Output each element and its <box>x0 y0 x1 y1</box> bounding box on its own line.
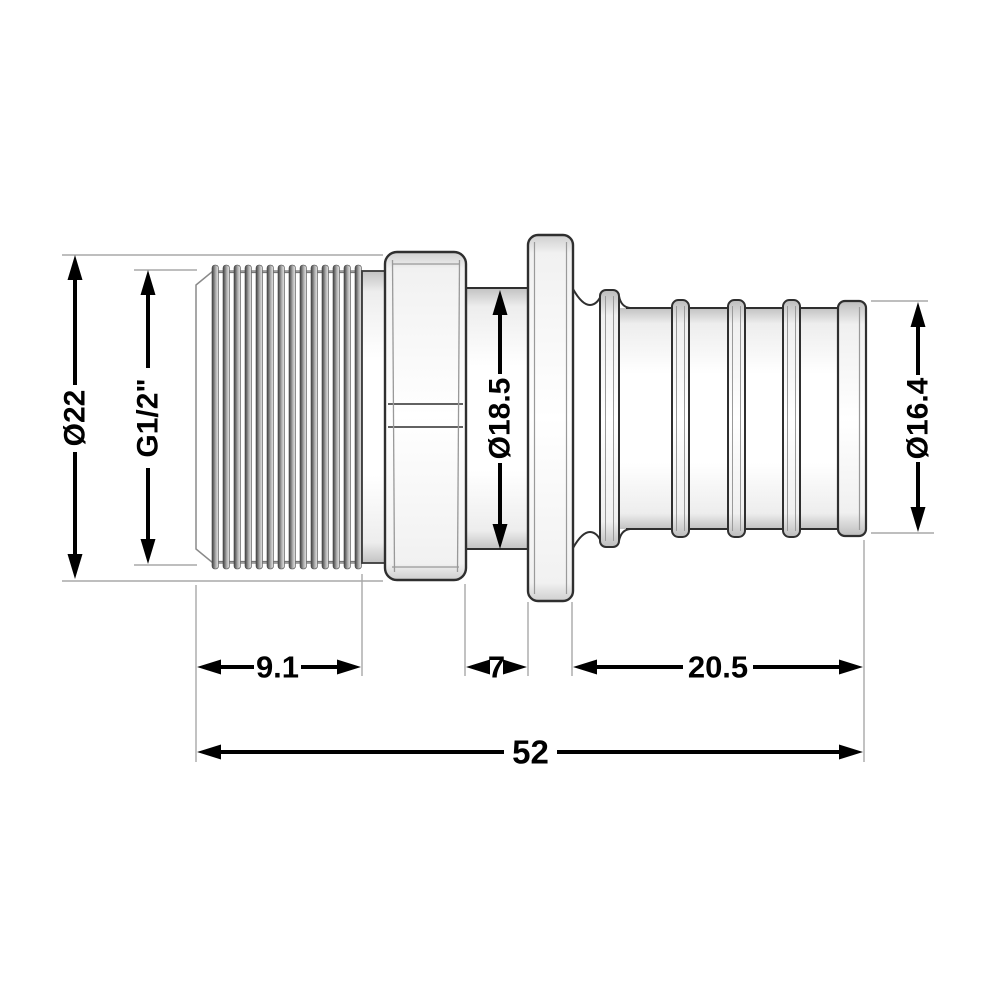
arrowhead-right <box>839 745 863 760</box>
arrowhead-left <box>197 660 221 675</box>
dim-thread-length-label: 9.1 <box>256 650 299 685</box>
hex-nut <box>385 252 466 580</box>
arrowhead-up <box>911 302 926 327</box>
dim-neck-length-label: 7 <box>488 650 505 685</box>
collar-flange <box>528 235 573 601</box>
dim-outer-diameter: Ø22 <box>59 255 92 579</box>
dim-outer-diameter-label: Ø22 <box>59 390 92 447</box>
arrowhead-right <box>839 660 863 675</box>
step-curve-bottom <box>619 529 630 541</box>
arrowhead-down <box>911 507 926 532</box>
arrowhead-down <box>141 539 156 564</box>
arrowhead-left <box>573 660 597 675</box>
dim-overall-length: 52 <box>197 734 863 771</box>
drawing-canvas: Ø22 G1/2" Ø18.5 Ø16.4 <box>0 0 1000 1000</box>
arrowhead-up <box>141 270 156 295</box>
dim-neck-length: 7 <box>466 650 527 685</box>
barb-rib-3 <box>783 300 800 537</box>
technical-drawing: Ø22 G1/2" Ø18.5 Ø16.4 <box>0 0 1000 1000</box>
dim-thread-size-label: G1/2" <box>132 378 165 457</box>
small-rib <box>600 290 619 547</box>
thread-shank <box>362 271 386 563</box>
dim-collar-diameter-label: Ø18.5 <box>484 378 517 460</box>
flange-fillet-groove <box>573 289 603 548</box>
step-curve-top <box>619 296 630 308</box>
arrowhead-right <box>337 660 361 675</box>
barb-rib-1 <box>672 300 689 537</box>
dim-barb-length: 20.5 <box>573 650 863 685</box>
arrowhead-left <box>197 745 221 760</box>
arrowhead-right <box>503 660 527 675</box>
dim-barb-diameter: Ø16.4 <box>902 302 935 532</box>
dim-thread-size: G1/2" <box>132 270 165 564</box>
arrowhead-down <box>68 554 83 579</box>
arrowhead-left <box>466 660 490 675</box>
dim-barb-length-label: 20.5 <box>688 650 748 685</box>
dim-overall-length-label: 52 <box>512 734 549 771</box>
end-cap-ring <box>838 301 866 536</box>
barb-rib-2 <box>728 300 745 537</box>
dim-barb-diameter-label: Ø16.4 <box>902 377 935 459</box>
thread-section <box>196 265 362 569</box>
dim-thread-length: 9.1 <box>197 650 361 685</box>
arrowhead-up <box>68 255 83 280</box>
